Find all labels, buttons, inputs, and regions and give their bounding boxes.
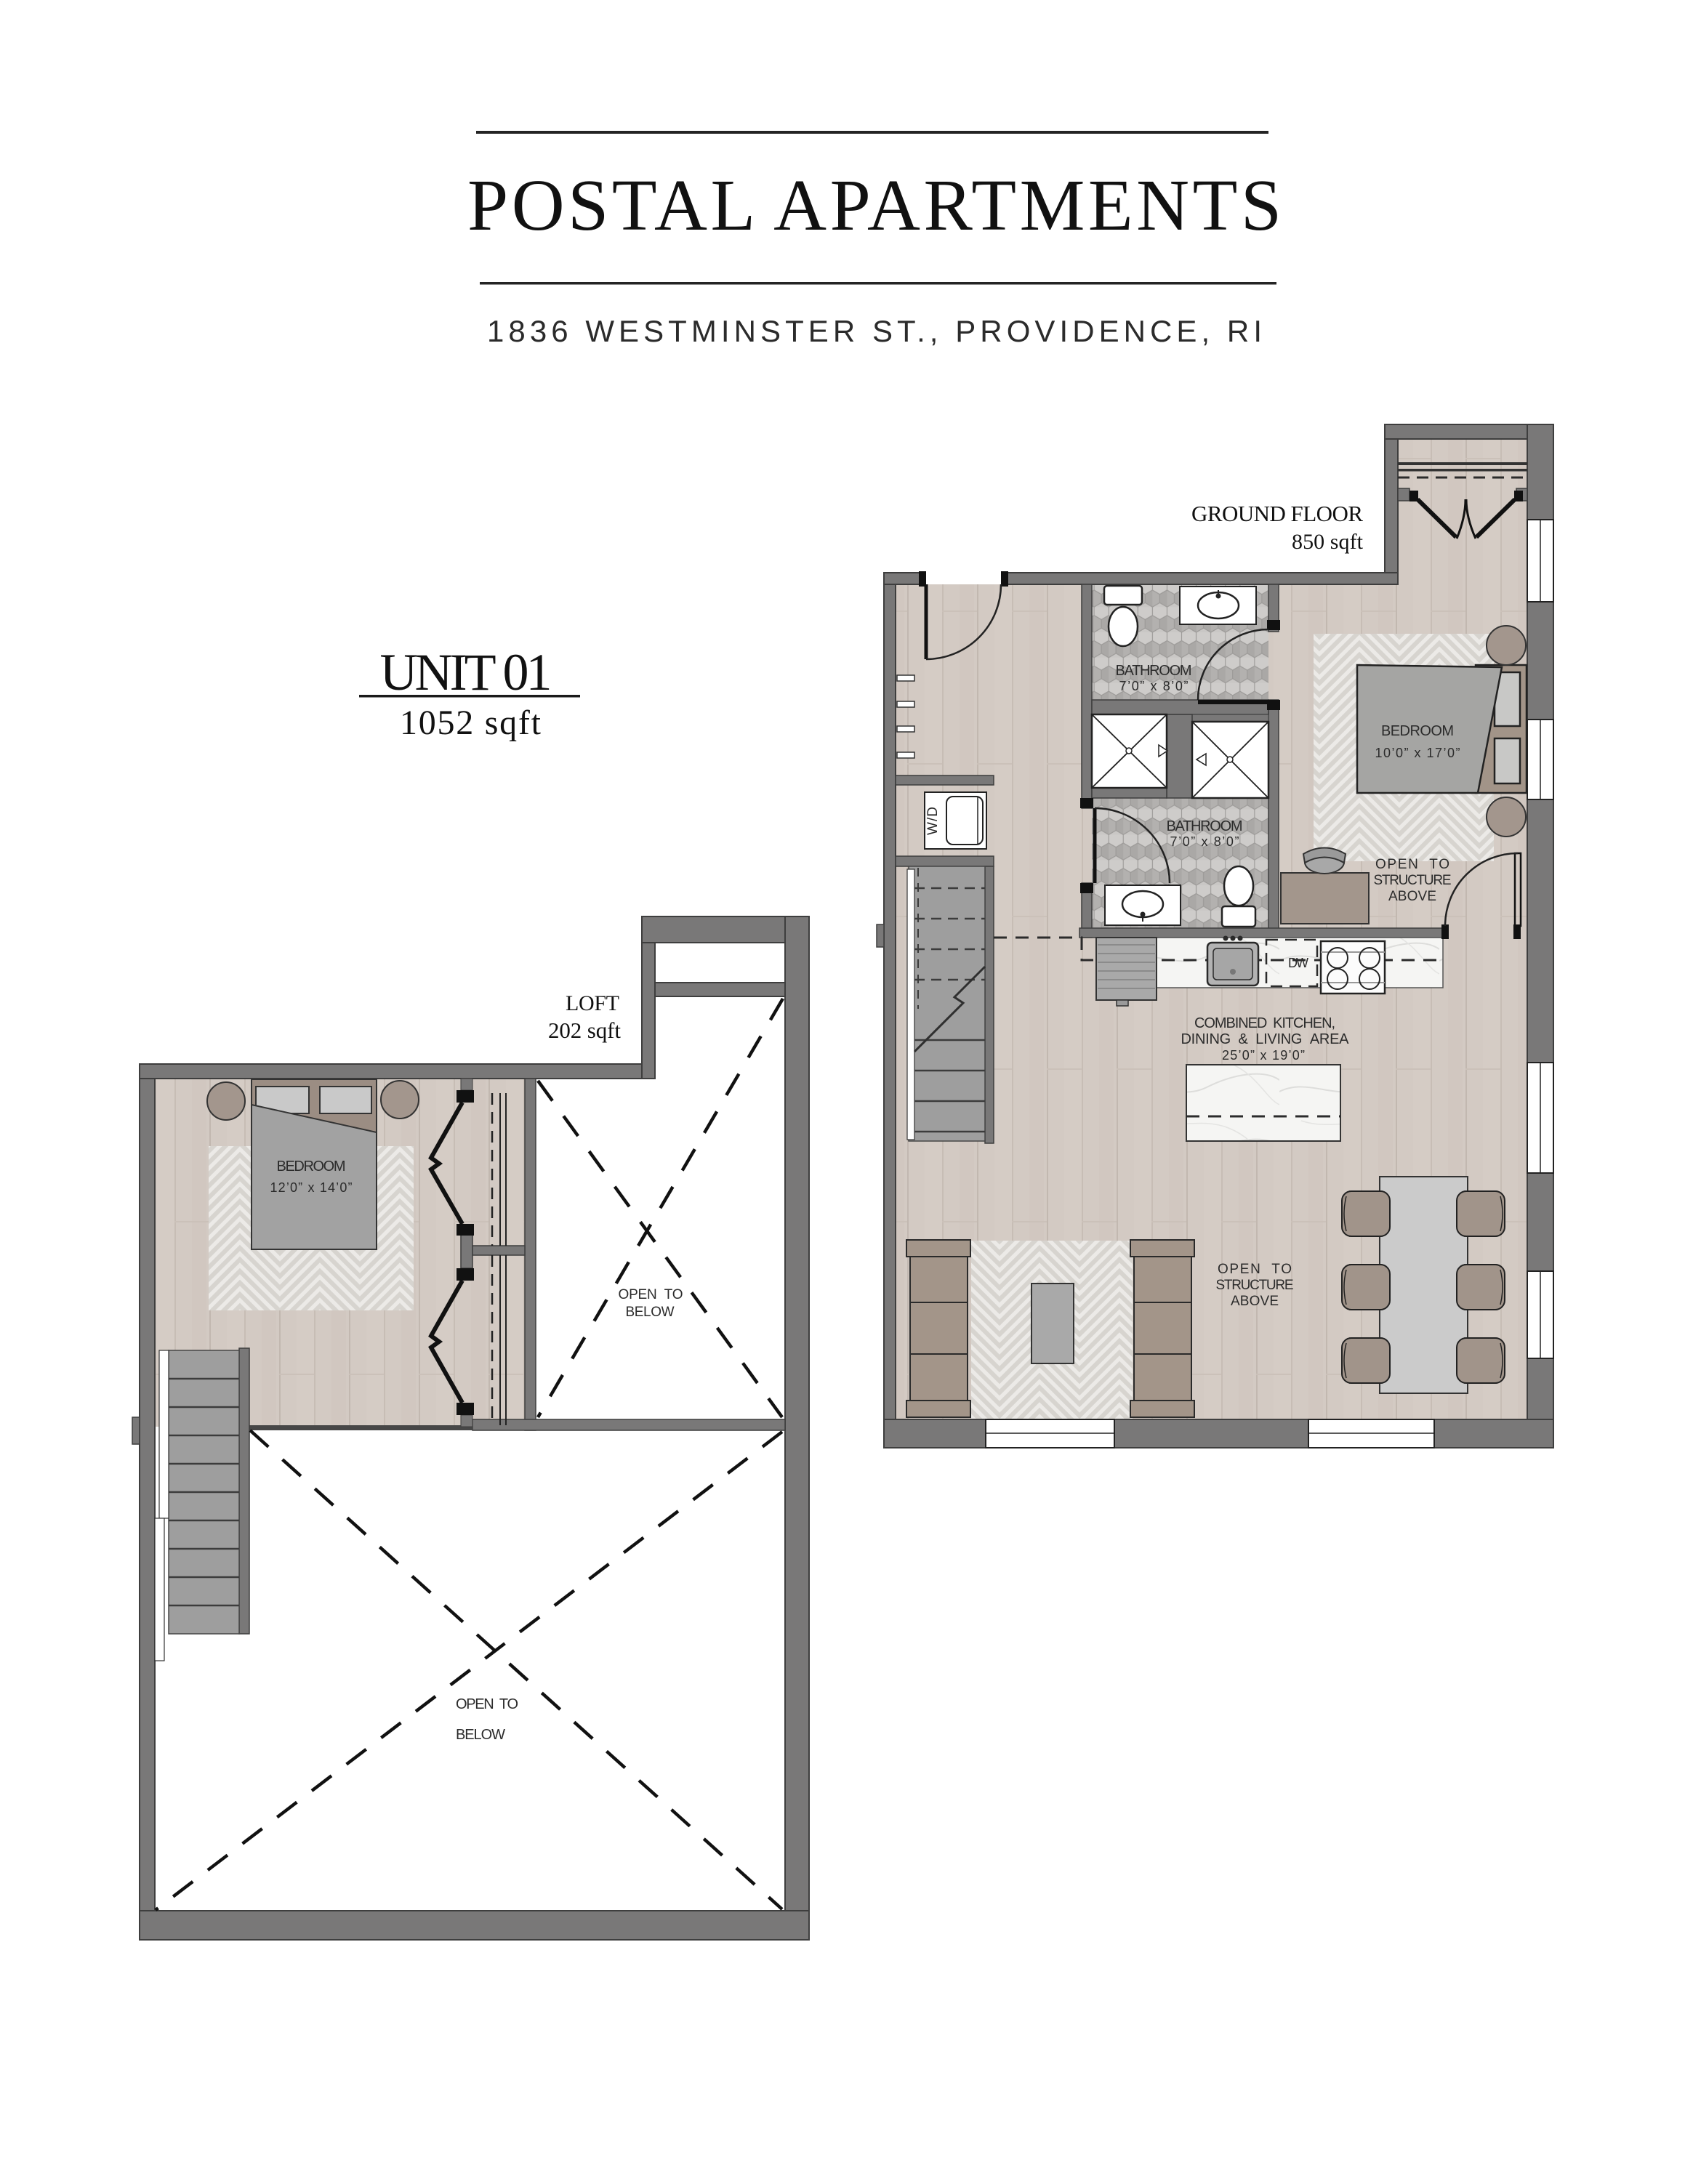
svg-text:BATHROOM: BATHROOM [1167,818,1243,834]
svg-text:BEDROOM: BEDROOM [1381,723,1454,739]
svg-text:W/D: W/D [925,806,941,835]
svg-text:STRUCTURE: STRUCTURE [1216,1278,1294,1293]
svg-text:OPEN TO: OPEN TO [619,1287,683,1302]
svg-text:7’0” x 8’0”: 7’0” x 8’0” [1119,679,1189,693]
svg-text:BELOW: BELOW [456,1727,505,1743]
svg-text:UNIT 01: UNIT 01 [380,643,552,701]
svg-text:STRUCTURE: STRUCTURE [1374,873,1452,888]
svg-text:BATHROOM: BATHROOM [1116,663,1192,679]
svg-text:POSTAL APARTMENTS: POSTAL APARTMENTS [467,164,1282,246]
svg-text:12’0” x 14’0”: 12’0” x 14’0” [270,1180,353,1195]
svg-text:COMBINED KITCHEN,: COMBINED KITCHEN, [1194,1015,1335,1031]
svg-text:850 sqft: 850 sqft [1292,530,1364,554]
svg-text:DW: DW [1288,956,1308,970]
svg-text:OPEN TO: OPEN TO [456,1696,518,1712]
svg-text:25’0” x 19’0”: 25’0” x 19’0” [1222,1048,1305,1063]
svg-text:GROUND FLOOR: GROUND FLOOR [1191,501,1363,526]
svg-text:BEDROOM: BEDROOM [277,1159,346,1174]
svg-text:ABOVE: ABOVE [1388,889,1436,904]
svg-text:LOFT: LOFT [566,991,619,1015]
svg-text:ABOVE: ABOVE [1231,1294,1279,1309]
svg-text:7’0” x 8’0”: 7’0” x 8’0” [1170,834,1239,849]
svg-text:BELOW: BELOW [626,1305,675,1320]
svg-text:202 sqft: 202 sqft [548,1018,621,1043]
svg-text:DINING & LIVING AREA: DINING & LIVING AREA [1181,1031,1350,1047]
svg-text:10’0” x 17’0”: 10’0” x 17’0” [1375,746,1460,760]
svg-text:1052 sqft: 1052 sqft [400,704,542,742]
